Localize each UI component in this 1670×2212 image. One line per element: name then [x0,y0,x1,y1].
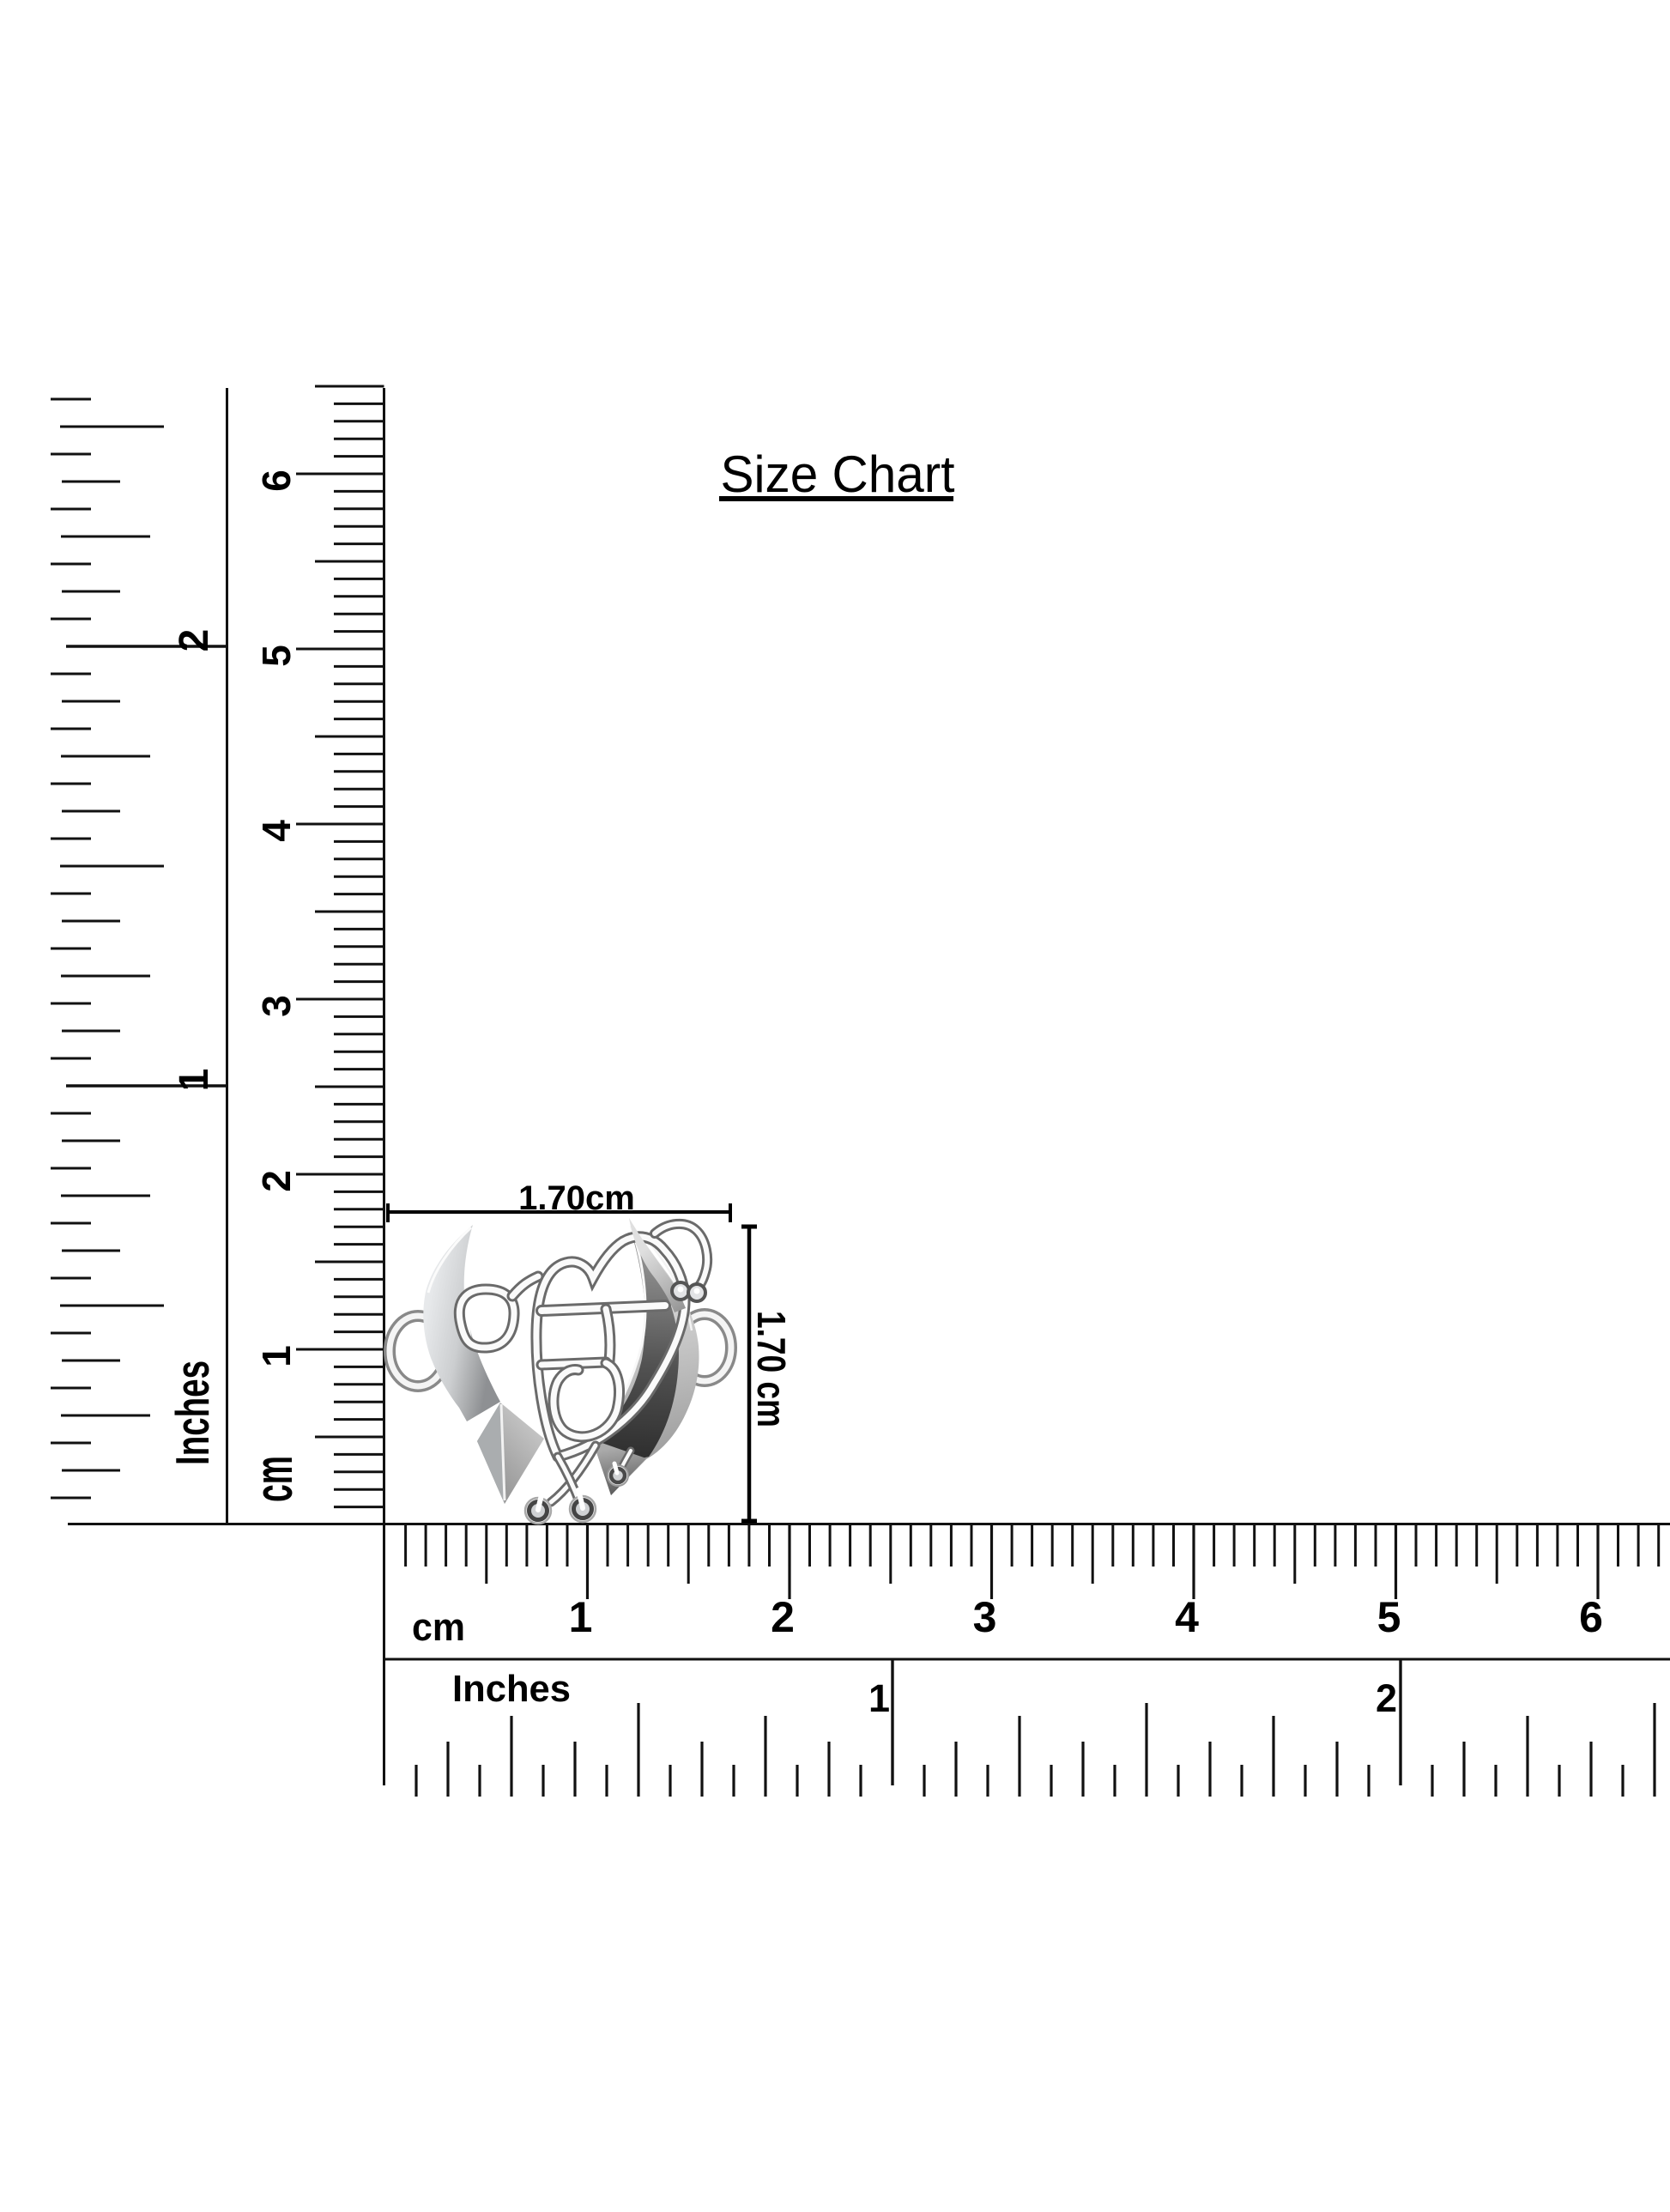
svg-text:Size Chart: Size Chart [721,445,955,503]
svg-text:4: 4 [254,820,299,842]
svg-text:Inches: Inches [166,1361,219,1465]
svg-text:6: 6 [254,470,299,492]
svg-text:1.70cm: 1.70cm [518,1179,635,1217]
svg-text:6: 6 [1579,1593,1603,1641]
svg-text:1: 1 [868,1676,890,1720]
svg-text:Inches: Inches [452,1668,571,1710]
svg-text:3: 3 [973,1593,997,1641]
svg-text:5: 5 [1377,1593,1401,1641]
svg-text:5: 5 [254,645,299,667]
svg-text:1: 1 [254,1345,299,1367]
svg-text:1: 1 [569,1593,593,1641]
svg-text:1.70 cm: 1.70 cm [749,1311,794,1427]
svg-text:4: 4 [1175,1593,1199,1641]
svg-text:cm: cm [412,1605,465,1649]
svg-text:2: 2 [172,629,217,652]
svg-text:1: 1 [172,1069,217,1092]
svg-text:3: 3 [254,995,299,1017]
svg-text:2: 2 [771,1593,795,1641]
svg-text:2: 2 [254,1170,299,1192]
svg-text:cm: cm [244,1456,303,1502]
svg-text:2: 2 [1376,1676,1397,1720]
